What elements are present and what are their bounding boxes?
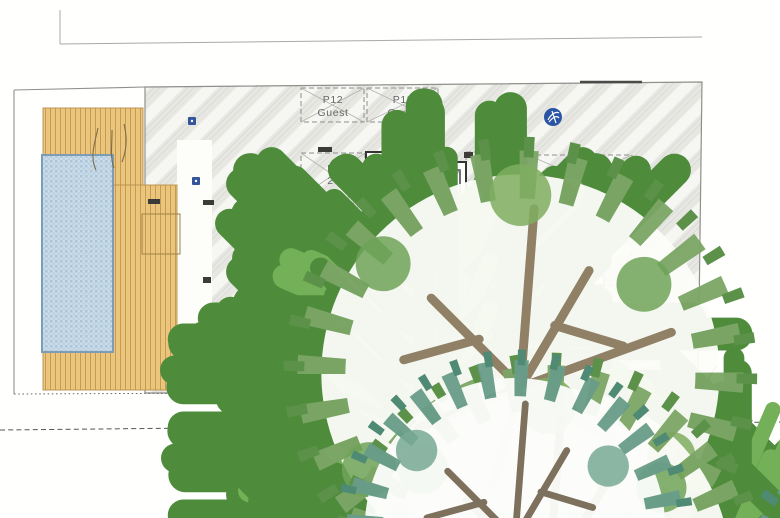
compass-badge-icon bbox=[544, 108, 562, 126]
site-plan-drawing: P12 Guest P13 Guest P11 202 P10 301 bbox=[0, 0, 780, 518]
stall-label-id: P12 bbox=[323, 94, 343, 106]
property-boundary-lines bbox=[60, 10, 702, 44]
stall-label-unit: Guest bbox=[317, 107, 348, 119]
site-plan-sheet: P12 Guest P13 Guest P11 202 P10 301 bbox=[0, 0, 780, 518]
swimming-pool bbox=[42, 155, 113, 352]
